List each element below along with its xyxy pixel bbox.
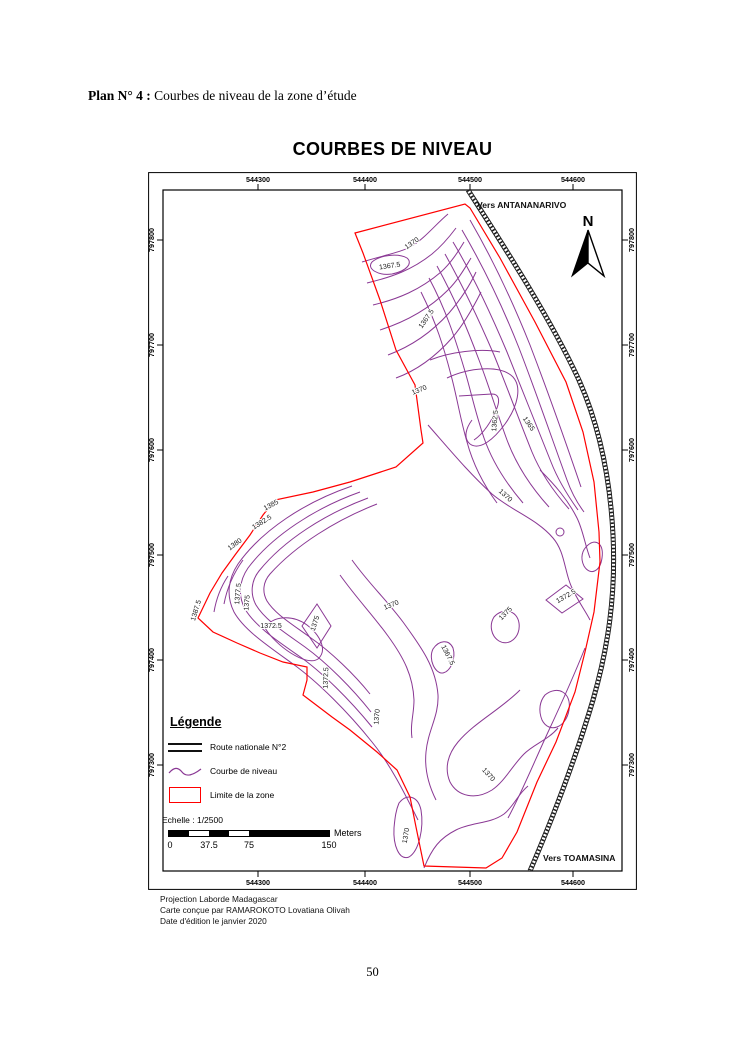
x-tick-label: 544300 <box>246 878 270 887</box>
y-tick-label: 797400 <box>627 648 636 672</box>
contour-label: 1375 <box>243 595 251 611</box>
north-label: N <box>583 213 594 230</box>
legend-item-label: Courbe de niveau <box>210 766 277 776</box>
scalebar-label: 37.5 <box>200 840 218 850</box>
scalebar-labels: 0 37.5 75 150 <box>168 840 378 852</box>
legend-item-label: Route nationale N°2 <box>210 742 286 752</box>
map-title: COURBES DE NIVEAU <box>148 139 637 160</box>
legend-title: Légende <box>170 715 392 729</box>
y-tick-label: 797400 <box>148 648 156 672</box>
y-tick-label: 797800 <box>148 228 156 252</box>
scale-text: Echelle : 1/2500 <box>162 815 392 825</box>
scalebar-label: 150 <box>321 840 336 850</box>
y-tick-label: 797600 <box>627 438 636 462</box>
scalebar-label: 0 <box>167 840 172 850</box>
legend: Légende Route nationale N°2 Courbe de ni… <box>162 715 392 825</box>
x-tick-label: 544500 <box>458 175 482 184</box>
legend-item-label: Limite de la zone <box>210 790 274 800</box>
x-tick-label: 544300 <box>246 175 270 184</box>
legend-item-contour: Courbe de niveau <box>168 763 392 779</box>
contour-label: 1372.5 <box>260 623 282 630</box>
x-tick-label: 544500 <box>458 878 482 887</box>
credit-date: Date d'édition le janvier 2020 <box>160 916 350 927</box>
y-tick-label: 797700 <box>627 333 636 357</box>
document-page: Plan N° 4 : Courbes de niveau de la zone… <box>0 0 745 1053</box>
direction-label-antananarivo: Vers ANTANANARIVO <box>477 200 567 210</box>
y-tick-label: 797500 <box>627 543 636 567</box>
y-tick-label: 797300 <box>627 753 636 777</box>
road-symbol-icon <box>168 743 202 752</box>
x-tick-label: 544600 <box>561 878 585 887</box>
plan-caption: Courbes de niveau de la zone d’étude <box>151 88 357 103</box>
scalebar: Meters 0 37.5 75 150 <box>168 830 378 852</box>
scalebar-label: 75 <box>244 840 254 850</box>
contour-label: 1372.5 <box>323 667 331 689</box>
credit-author: Carte conçue par RAMAROKOTO Lovatiana Ol… <box>160 905 350 916</box>
contour-symbol-icon <box>168 765 202 777</box>
map-frame: 544300 544400 544500 544600 544300 54440… <box>148 172 637 890</box>
x-tick-label: 544600 <box>561 175 585 184</box>
scalebar-unit: Meters <box>334 828 362 838</box>
direction-label-toamasina: Vers TOAMASINA <box>543 853 615 863</box>
doc-heading: Plan N° 4 : Courbes de niveau de la zone… <box>88 88 357 104</box>
plan-number: Plan N° 4 : <box>88 88 151 103</box>
legend-item-road: Route nationale N°2 <box>168 739 392 755</box>
map-credits: Projection Laborde Madagascar Carte conç… <box>160 894 350 928</box>
legend-item-zone: Limite de la zone <box>168 787 392 803</box>
scalebar-bar <box>168 830 330 837</box>
y-tick-label: 797700 <box>148 333 156 357</box>
page-number: 50 <box>0 965 745 980</box>
x-tick-label: 544400 <box>353 175 377 184</box>
y-tick-label: 797500 <box>148 543 156 567</box>
x-tick-label: 544400 <box>353 878 377 887</box>
y-tick-label: 797300 <box>148 753 156 777</box>
y-tick-label: 797600 <box>148 438 156 462</box>
zone-symbol-icon <box>168 787 202 803</box>
credit-projection: Projection Laborde Madagascar <box>160 894 350 905</box>
y-tick-label: 797800 <box>627 228 636 252</box>
